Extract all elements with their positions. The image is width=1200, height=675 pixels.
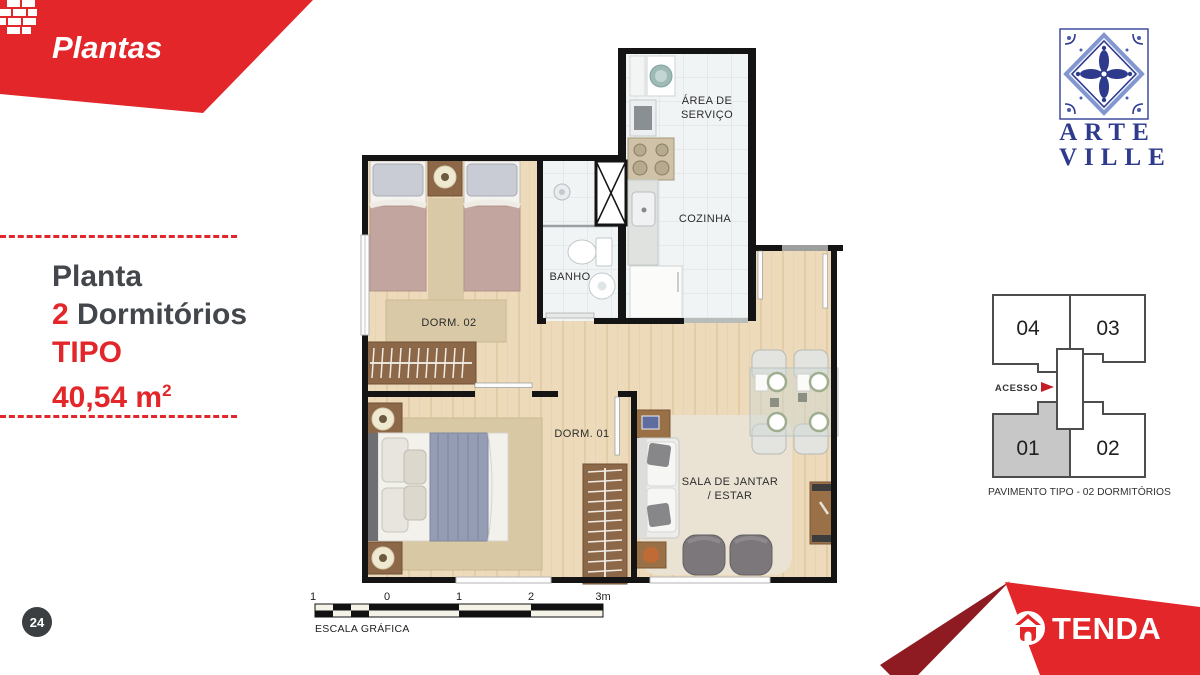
core-shape [1057, 349, 1083, 429]
plantas-banner: Plantas [0, 0, 340, 120]
unit-03-number: 03 [1096, 317, 1119, 340]
plan-info-area: 40,54 m2 [52, 372, 247, 417]
burner [656, 144, 668, 156]
clothes-rack-dorm01 [583, 464, 627, 584]
wall [748, 48, 756, 321]
blanket [370, 206, 426, 291]
fridge [630, 266, 682, 318]
toilet-tank [596, 238, 612, 266]
clothes-rack-dorm02 [366, 342, 476, 384]
pillow-front [404, 450, 426, 484]
wall [362, 391, 475, 397]
tenda-house-door [1025, 632, 1032, 642]
plan-info-area-sup: 2 [162, 381, 171, 400]
wall [537, 155, 543, 321]
tenda-banner: TENDA [860, 555, 1200, 675]
tenda-logo-icon [1011, 611, 1045, 645]
wall [618, 48, 626, 161]
door-leaf-banho [546, 313, 594, 318]
pillow [467, 164, 517, 196]
wall [618, 225, 626, 321]
label-banho: BANHO [549, 271, 590, 283]
cabinet [630, 56, 645, 96]
wall [551, 577, 650, 583]
sofa [637, 438, 679, 538]
wall [532, 391, 558, 397]
single-bed-right [464, 161, 520, 291]
wall [756, 245, 782, 251]
stove [628, 138, 674, 180]
sofa-back [637, 438, 647, 538]
plate [810, 413, 828, 431]
rug-dorm02 [428, 198, 464, 308]
plate [768, 413, 786, 431]
window-dorm01 [456, 577, 551, 583]
kitchen-threshold [684, 318, 748, 323]
double-bed [366, 433, 508, 541]
scale-bar: 1 0 1 2 3m ESCALA GRÁFICA [310, 591, 611, 635]
laundry-tank-basin [634, 106, 652, 130]
sink-drain [598, 282, 607, 291]
plate [810, 373, 828, 391]
tenda-banner-dark-wedge [880, 581, 1010, 675]
scale-tick-3m: 3m [595, 591, 610, 603]
label-dorm01: DORM. 01 [554, 428, 609, 440]
plan-info-dorms: 2 Dormitórios [52, 296, 247, 334]
wall [594, 318, 684, 324]
plant [643, 547, 659, 563]
napkin [797, 374, 810, 391]
label-area-servico-line1: ÁREA DE [682, 94, 733, 107]
wall [622, 48, 756, 54]
floor-plan: ÁREA DE SERVIÇO COZINHA BANHO DORM. 02 D… [300, 30, 860, 640]
coaster [770, 398, 779, 407]
lamp-center [379, 554, 387, 562]
wall [362, 155, 368, 583]
burner [633, 161, 647, 175]
wall [362, 155, 626, 161]
door-leaf-entry [758, 251, 763, 299]
scale-tick-2: 2 [528, 591, 534, 603]
stove-top [628, 138, 674, 180]
pillow [373, 164, 423, 196]
single-bed-left [370, 161, 426, 291]
duct-shaft [596, 161, 626, 225]
key-plan: 04 03 01 02 ACESSO PAVIMENTO TIPO - 02 D… [978, 290, 1188, 505]
scale-tick-1b: 1 [456, 591, 462, 603]
slide-plantas: { "banner": { "title": "Plantas" }, "inf… [0, 0, 1200, 675]
acesso-label: ACESSO [995, 383, 1038, 394]
label-cozinha: COZINHA [679, 213, 732, 225]
arteville-word-ville: VILLE [1052, 145, 1156, 170]
wall [770, 577, 837, 583]
burner [655, 161, 669, 175]
plan-info-block: Planta 2 Dormitórios TIPO 40,54 m2 [52, 258, 247, 417]
plan-info-tipo: TIPO [52, 334, 247, 372]
door-leaf-dorm02 [475, 383, 532, 388]
brick-icon [0, 0, 40, 34]
magazines [642, 416, 659, 429]
unit-02-number: 02 [1096, 437, 1119, 460]
washer-drum-inner [655, 70, 667, 82]
tenda-wordmark: TENDA [1052, 611, 1161, 646]
throw-pillow [647, 503, 672, 528]
lamp-center [379, 415, 387, 423]
plan-info-dorms-number: 2 [52, 298, 69, 331]
acesso-arrow-icon [1041, 382, 1054, 392]
lamp-center [441, 173, 449, 181]
plan-info-title: Planta [52, 258, 247, 296]
plate [768, 373, 786, 391]
label-dorm02: DORM. 02 [421, 317, 476, 329]
dashed-divider-top [0, 235, 237, 238]
sala-window-sill [782, 245, 828, 251]
wall [631, 391, 637, 583]
label-sala-line2: / ESTAR [708, 490, 753, 502]
toilet-bowl [568, 240, 596, 264]
scale-caption: ESCALA GRÁFICA [315, 622, 410, 635]
blanket [464, 206, 520, 291]
burner [634, 144, 646, 156]
wall [537, 318, 546, 324]
wall [831, 245, 837, 583]
azulejo-tile-icon [1059, 28, 1149, 120]
shower-drain-center [559, 189, 565, 195]
plan-info-area-value: 40,54 m [52, 381, 162, 414]
coaster [798, 393, 807, 402]
scale-bar-checker [315, 604, 603, 617]
pillow-front [404, 486, 426, 520]
door-leaf-dorm01 [615, 397, 620, 455]
label-sala-line1: SALA DE JANTAR [682, 476, 778, 488]
sliding-door-leaf [823, 254, 828, 308]
arteville-logo: ARTE VILLE [1052, 28, 1156, 170]
tv-speaker [812, 484, 834, 491]
dining-set [750, 350, 838, 454]
scale-tick-1: 1 [310, 591, 316, 603]
key-plan-caption: PAVIMENTO TIPO - 02 DORMITÓRIOS [988, 485, 1171, 498]
unit-01-number: 01 [1016, 437, 1039, 460]
kitchen-sink-drain [642, 208, 647, 213]
wall [362, 577, 456, 583]
napkin [755, 374, 768, 391]
throw-pillow [647, 443, 672, 468]
page-number-badge: 24 [22, 607, 52, 637]
tv-speaker [812, 535, 834, 542]
unit-04-number: 04 [1016, 317, 1040, 340]
arteville-word-arte: ARTE [1052, 120, 1156, 145]
plan-info-dorms-text: Dormitórios [77, 298, 247, 331]
plantas-banner-title: Plantas [52, 30, 172, 66]
label-area-servico-line2: SERVIÇO [681, 109, 733, 121]
window-sala [650, 577, 770, 583]
scale-tick-0: 0 [384, 591, 390, 603]
